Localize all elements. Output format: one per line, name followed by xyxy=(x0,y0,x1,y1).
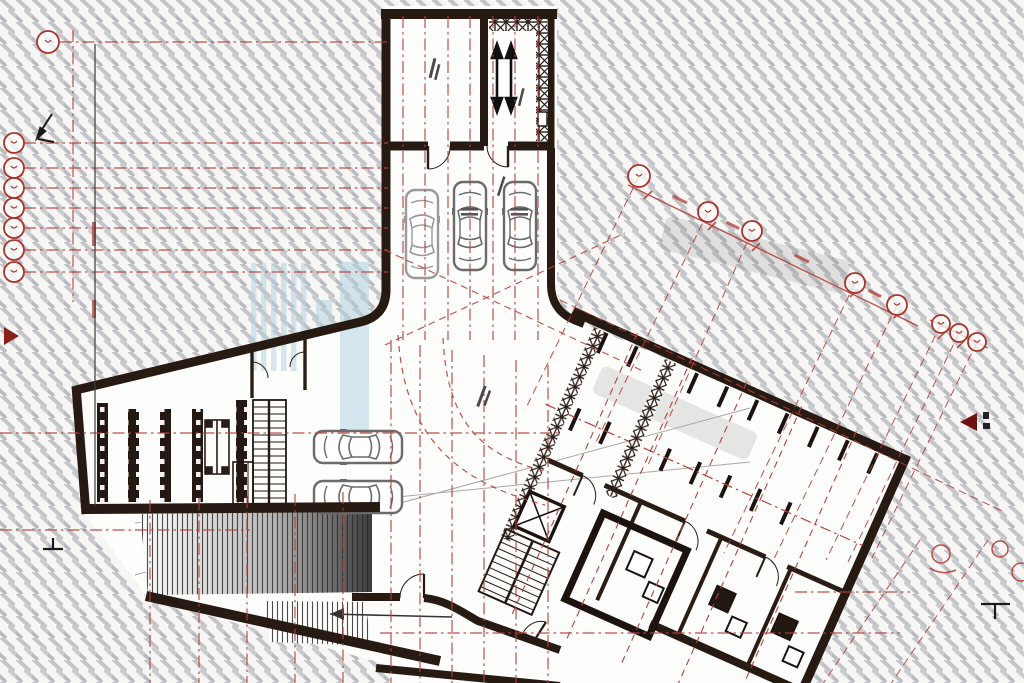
floor-plan-canvas xyxy=(0,0,1024,683)
floor-plan-scan xyxy=(0,0,1024,683)
parked-cars-vertical xyxy=(404,182,538,278)
section-label-smudge xyxy=(983,412,989,419)
left-wing-bottom-wall xyxy=(84,507,380,509)
ramp-main xyxy=(140,511,372,595)
